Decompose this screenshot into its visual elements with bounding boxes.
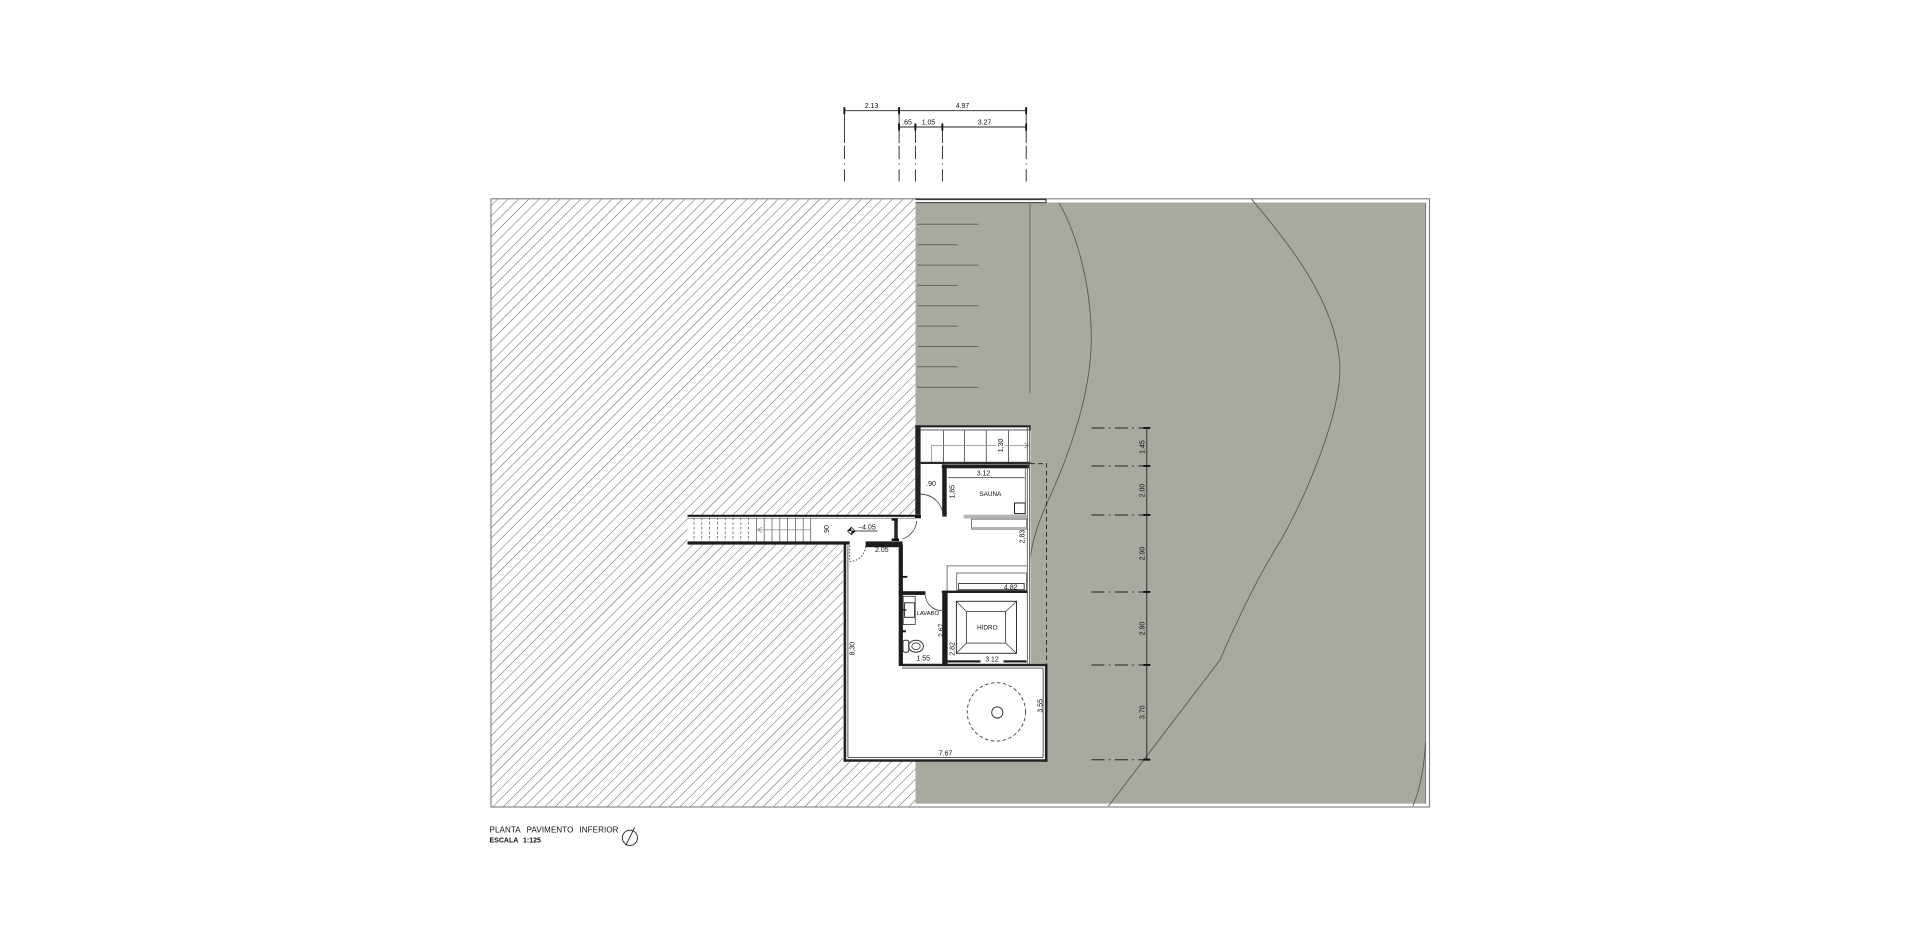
svg-text:1.45: 1.45 — [1139, 440, 1146, 454]
svg-text:2.90: 2.90 — [1139, 622, 1146, 636]
svg-text:.65: .65 — [902, 120, 912, 127]
svg-text:2,67: 2,67 — [939, 623, 946, 637]
svg-text:PLANTA PAVIMENTO INFERIOR: PLANTA PAVIMENTO INFERIOR — [490, 825, 619, 834]
svg-text:2.13: 2.13 — [865, 103, 879, 110]
svg-text:3.12: 3.12 — [977, 470, 991, 477]
svg-text:2,83: 2,83 — [1020, 530, 1027, 544]
svg-text:4.82: 4.82 — [1004, 584, 1018, 591]
svg-text:SAUNA: SAUNA — [979, 491, 1002, 498]
svg-text:1.55: 1.55 — [916, 655, 930, 662]
svg-text:4.97: 4.97 — [956, 103, 970, 110]
svg-text:.90: .90 — [824, 525, 831, 535]
svg-text:LAVABO: LAVABO — [917, 611, 940, 617]
svg-text:2,82: 2,82 — [950, 642, 957, 656]
svg-text:3,55: 3,55 — [1038, 699, 1045, 713]
svg-text:1.05: 1.05 — [922, 120, 936, 127]
svg-text:7.67: 7.67 — [939, 751, 953, 758]
svg-text:−4.05: −4.05 — [858, 524, 876, 531]
svg-text:3.70: 3.70 — [1139, 705, 1146, 719]
svg-text:3.12: 3.12 — [985, 657, 999, 664]
svg-text:8,30: 8,30 — [850, 642, 857, 656]
svg-text:HIDRO: HIDRO — [977, 624, 998, 631]
svg-text:2.90: 2.90 — [1139, 547, 1146, 561]
svg-text:2.05: 2.05 — [875, 547, 889, 554]
svg-text:.90: .90 — [926, 481, 936, 488]
svg-text:1,85: 1,85 — [949, 485, 956, 499]
svg-text:ESCALA 1:125: ESCALA 1:125 — [490, 838, 541, 845]
svg-text:2.00: 2.00 — [1139, 484, 1146, 498]
svg-text:1,30: 1,30 — [998, 438, 1005, 452]
svg-text:3.27: 3.27 — [978, 120, 992, 127]
